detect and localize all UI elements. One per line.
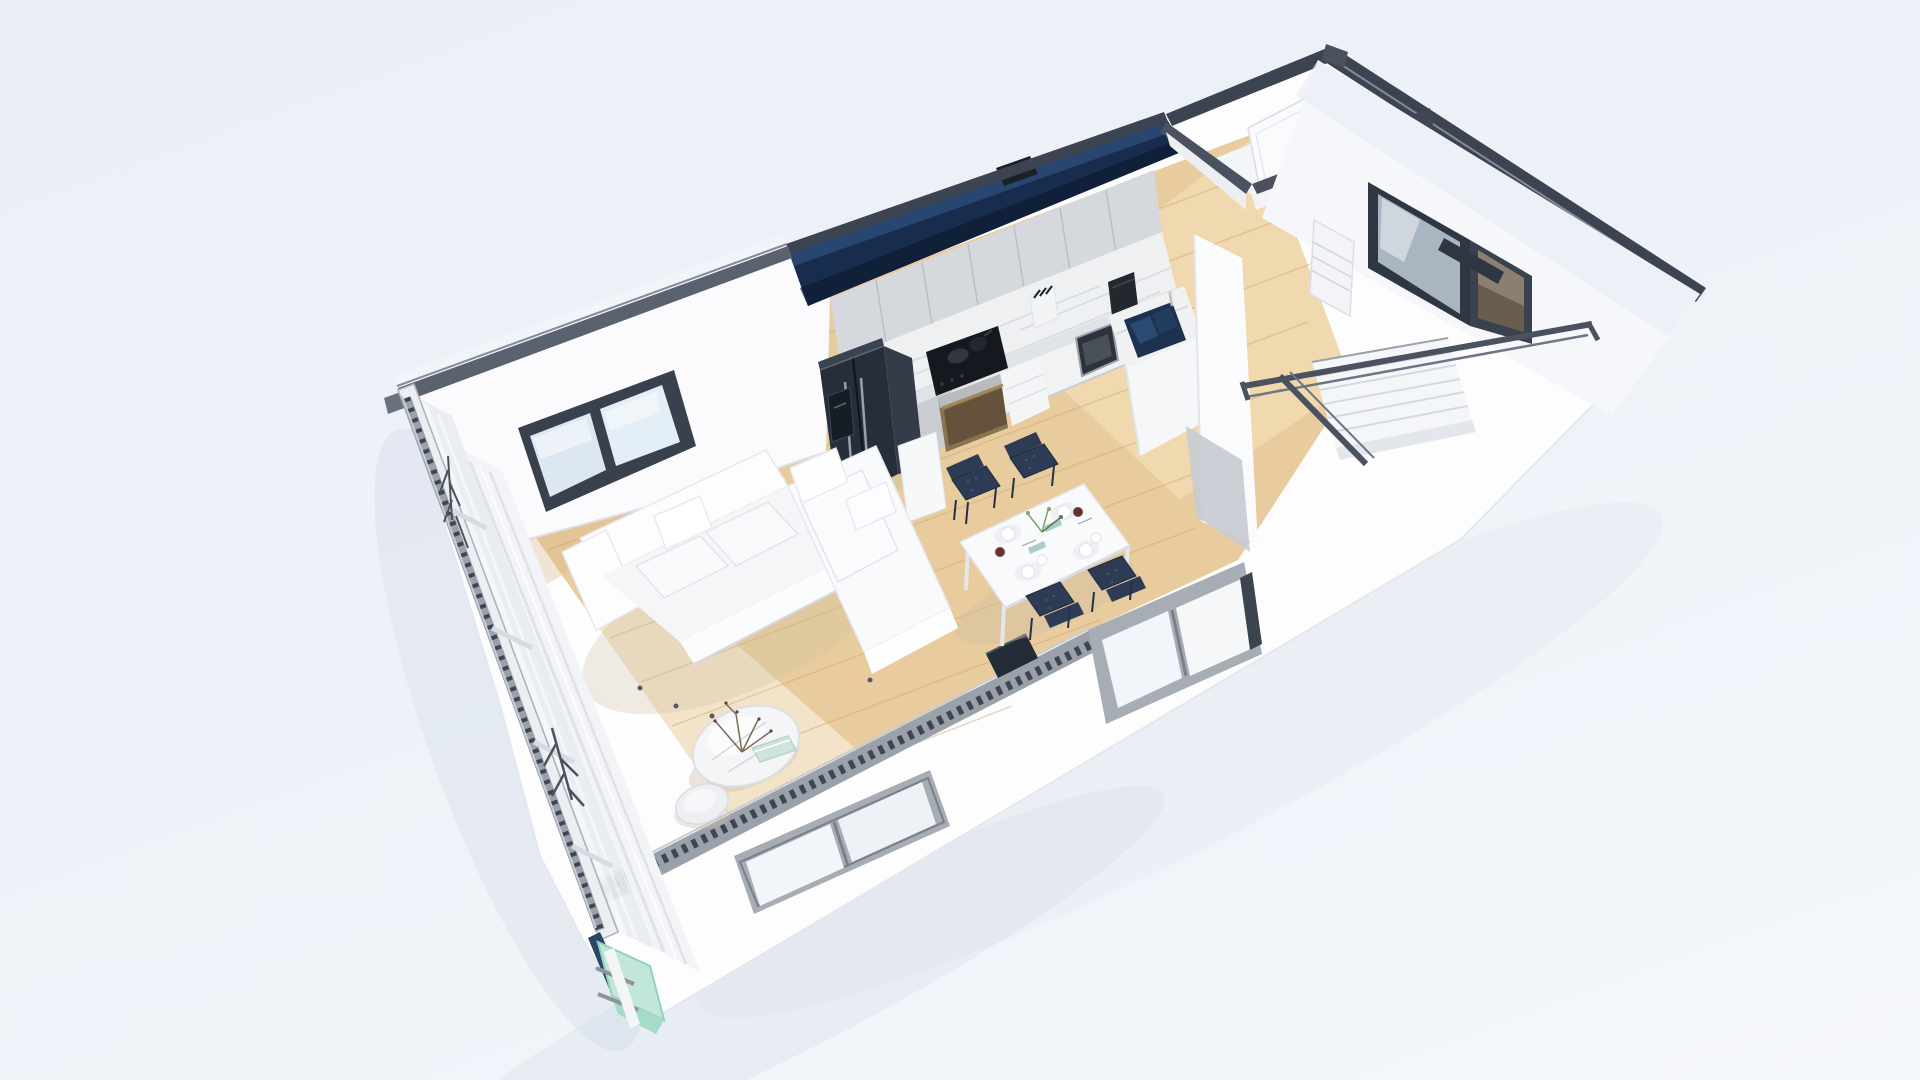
cup-brown-2 bbox=[1074, 508, 1083, 517]
floorplan-render: Photorealistic 3D isometric cutaway floo… bbox=[0, 0, 1920, 1080]
cup-brown-1 bbox=[996, 548, 1005, 557]
render-canvas: Photorealistic 3D isometric cutaway floo… bbox=[0, 0, 1920, 1080]
fridge-dispenser bbox=[828, 388, 854, 442]
